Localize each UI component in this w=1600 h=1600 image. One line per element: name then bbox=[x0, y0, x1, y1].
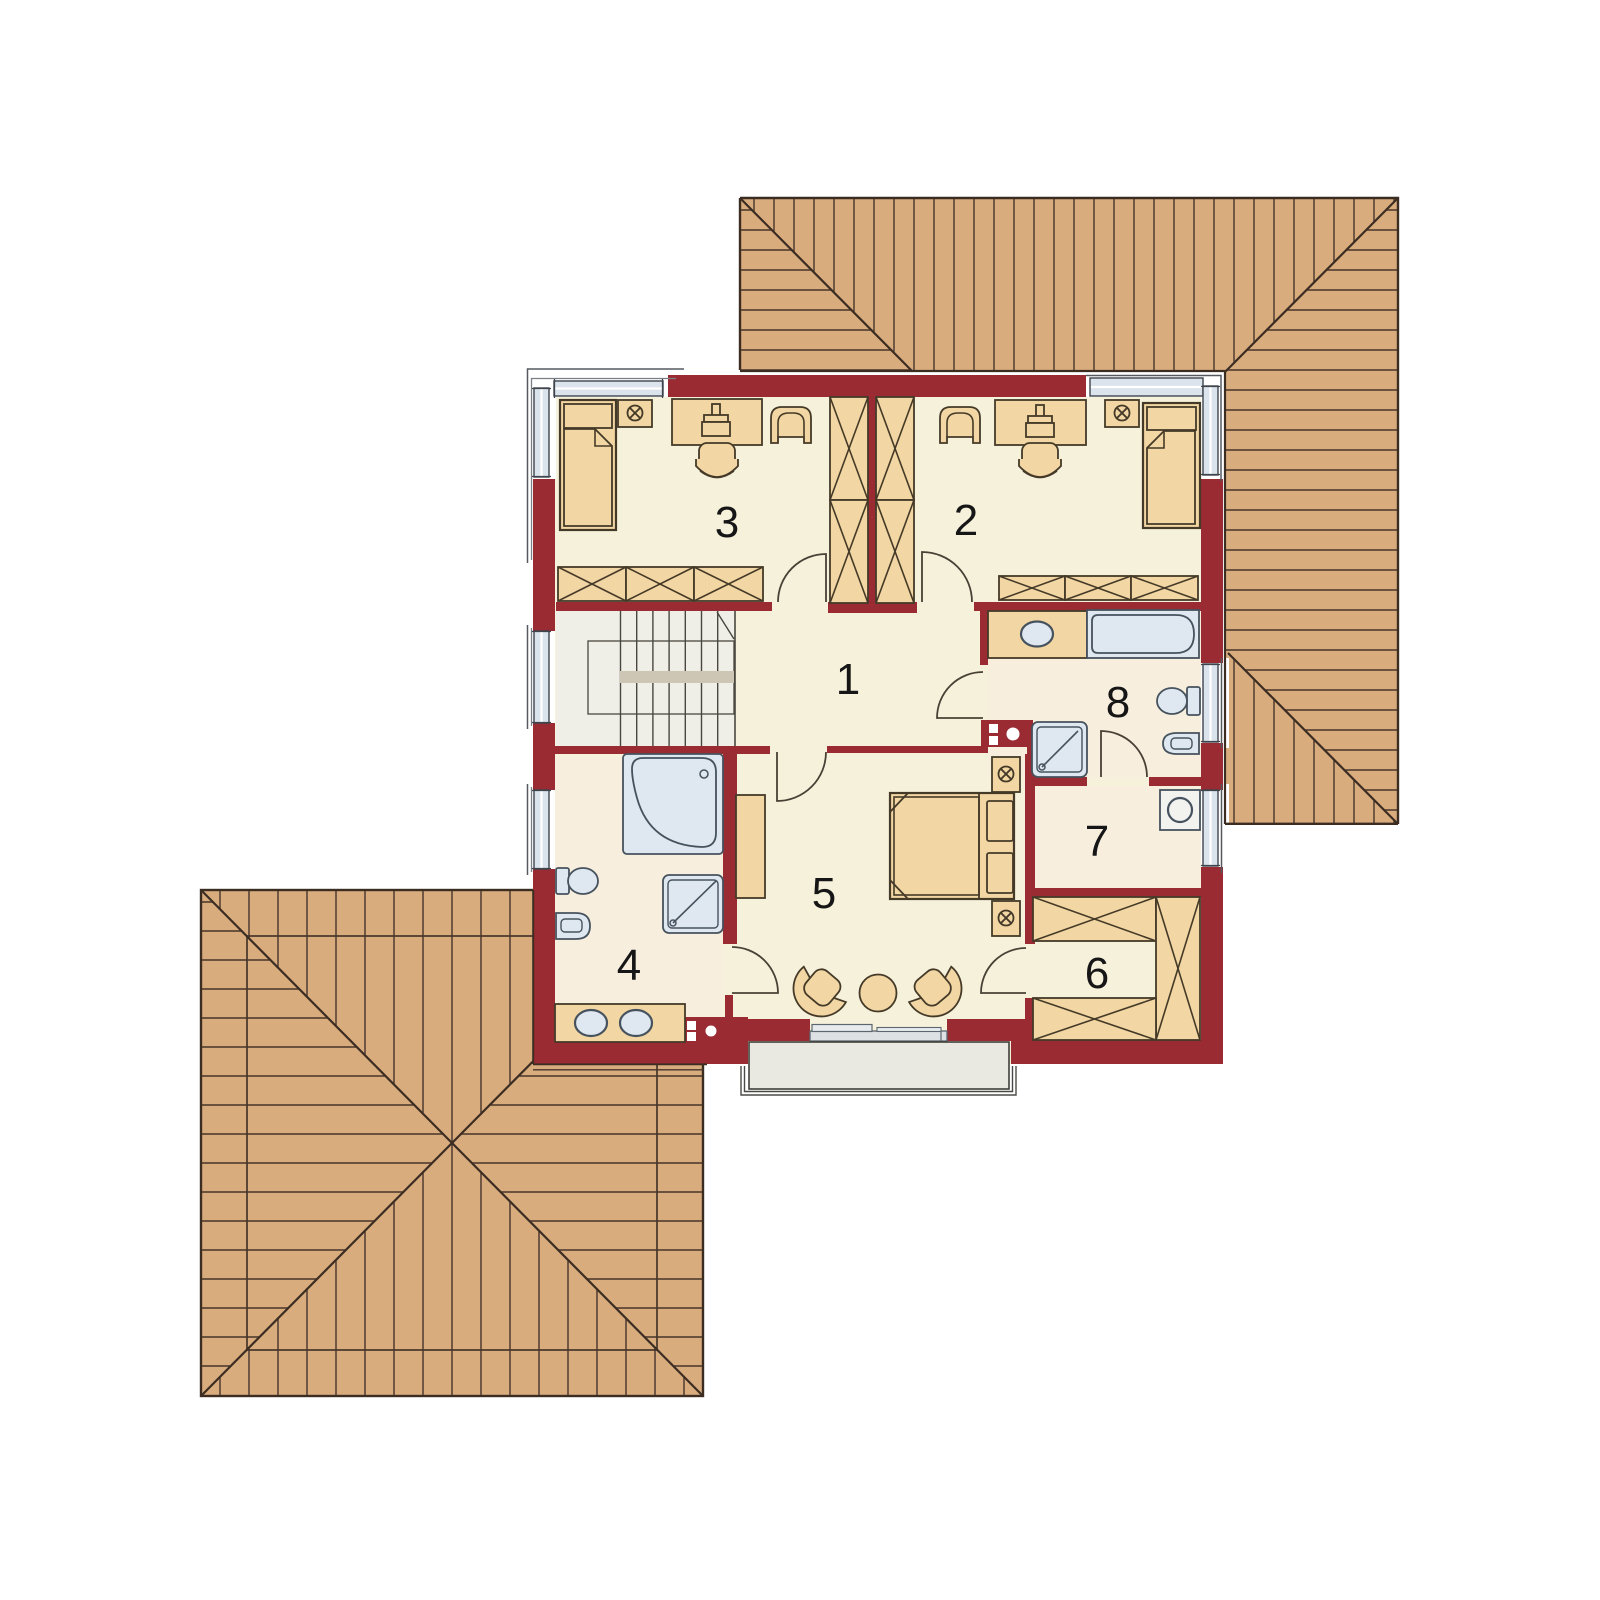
svg-text:8: 8 bbox=[1106, 678, 1130, 727]
svg-text:5: 5 bbox=[812, 869, 836, 918]
svg-text:3: 3 bbox=[715, 498, 739, 547]
svg-text:2: 2 bbox=[954, 496, 978, 545]
svg-text:7: 7 bbox=[1085, 817, 1109, 866]
svg-text:4: 4 bbox=[617, 941, 641, 990]
svg-text:6: 6 bbox=[1085, 949, 1109, 998]
svg-text:1: 1 bbox=[836, 655, 860, 704]
